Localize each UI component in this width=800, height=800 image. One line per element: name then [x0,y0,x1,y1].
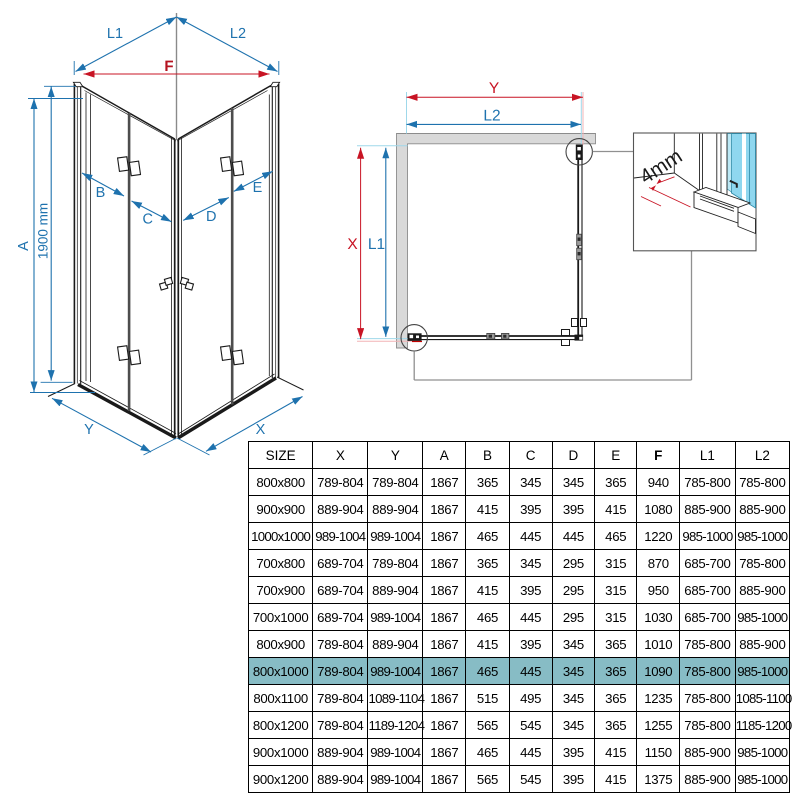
svg-text:X: X [256,422,266,438]
svg-text:C: C [142,212,152,228]
svg-text:Y: Y [84,422,94,438]
svg-text:1900 mm: 1900 mm [36,203,51,259]
svg-text:Y: Y [489,80,499,97]
svg-text:B: B [96,185,106,201]
svg-text:L1: L1 [368,236,385,253]
svg-text:E: E [253,180,263,196]
svg-text:L2: L2 [483,108,500,125]
svg-text:L2: L2 [230,26,246,42]
svg-text:L1: L1 [107,26,123,42]
svg-text:F: F [164,58,173,75]
svg-text:D: D [206,209,216,225]
svg-text:X: X [347,236,358,253]
svg-text:A: A [16,241,32,251]
